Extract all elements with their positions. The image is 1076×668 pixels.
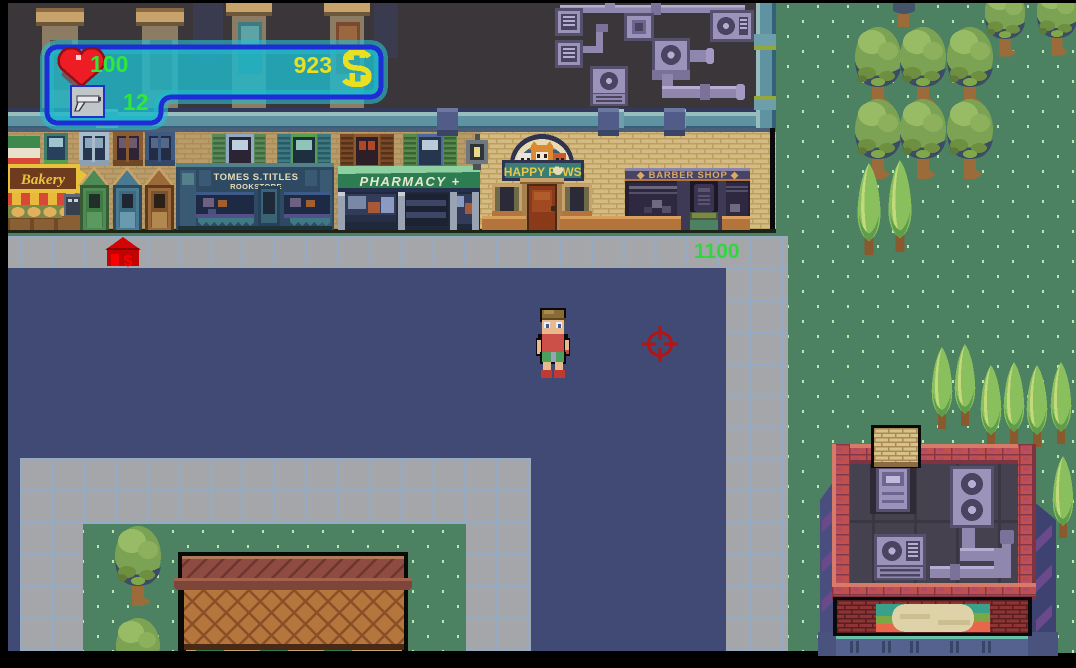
svg-text:12: 12: [123, 89, 149, 115]
svg-text:100: 100: [90, 51, 128, 77]
svg-text:PHARMACY +: PHARMACY +: [359, 174, 460, 189]
svg-text:$: $: [124, 253, 133, 270]
svg-text:◆ BARBER SHOP ◆: ◆ BARBER SHOP ◆: [636, 170, 739, 181]
svg-text:WS: WS: [562, 165, 581, 179]
svg-text:Bakery: Bakery: [20, 172, 66, 188]
svg-text:923: 923: [294, 52, 332, 78]
svg-text:1100: 1100: [694, 240, 740, 263]
svg-text:HAPPY P: HAPPY P: [504, 165, 556, 179]
